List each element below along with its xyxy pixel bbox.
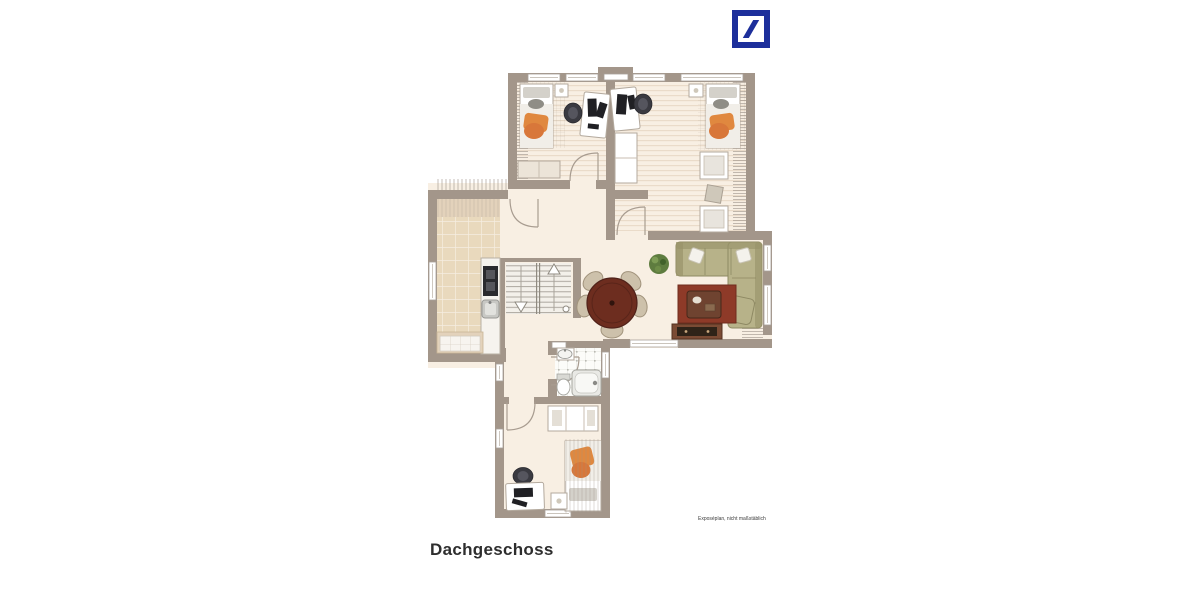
laptop-icon	[587, 98, 597, 116]
coffee-table-icon	[687, 291, 721, 318]
stove-icon	[483, 266, 498, 296]
plan-disclaimer: Exposéplan, nicht maßstäblich	[698, 516, 766, 522]
plant-icon	[649, 254, 669, 274]
washbasin-icon	[557, 348, 574, 360]
window	[496, 364, 503, 381]
floor-plan	[0, 0, 1200, 600]
window	[764, 245, 771, 271]
floor-caption: Dachgeschoss	[430, 540, 554, 560]
rug-icon	[678, 285, 736, 323]
window	[602, 352, 609, 378]
office-chair-icon	[513, 468, 533, 485]
wardrobe-box-icon	[700, 206, 728, 232]
window	[566, 74, 598, 81]
low-cabinet-icon	[518, 161, 560, 178]
staircase	[506, 263, 571, 314]
sink-icon	[482, 300, 499, 318]
window	[528, 74, 560, 81]
desk-icon	[580, 92, 610, 138]
window	[429, 262, 436, 300]
nightstand-icon	[555, 84, 568, 97]
nightstand-icon	[689, 84, 703, 97]
window	[630, 340, 678, 347]
window	[604, 74, 628, 80]
nightstand-icon	[551, 493, 567, 509]
sideboard-icon	[672, 324, 722, 339]
office-chair-icon	[564, 103, 582, 123]
laptop-icon	[514, 488, 533, 498]
window	[552, 342, 566, 348]
cushion-icon	[736, 247, 752, 263]
wardrobe-icon	[615, 133, 637, 183]
counter-icon	[437, 332, 483, 353]
window	[764, 285, 771, 325]
bed-icon	[706, 84, 740, 148]
window	[496, 429, 503, 448]
wardrobe-box-icon	[700, 152, 728, 179]
toilet-icon	[557, 374, 570, 395]
wardrobe-icon	[548, 406, 598, 431]
bed-icon	[563, 439, 603, 513]
office-chair-icon	[634, 94, 652, 114]
desk-icon	[506, 482, 545, 510]
laptop-icon	[616, 94, 627, 115]
window	[681, 74, 743, 81]
window	[633, 74, 665, 81]
bathtub-icon	[572, 370, 601, 396]
storage-box-icon	[705, 185, 724, 204]
bed-icon	[520, 84, 553, 148]
